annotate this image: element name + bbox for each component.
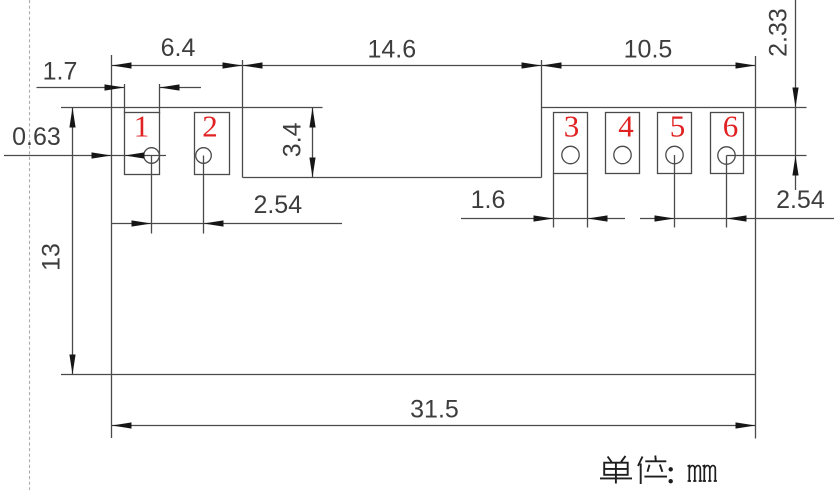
svg-text:5: 5 (670, 109, 686, 144)
svg-text:3.4: 3.4 (279, 122, 307, 157)
svg-text:0.63: 0.63 (12, 123, 61, 151)
svg-text:1.6: 1.6 (471, 186, 506, 214)
svg-text:3: 3 (564, 109, 580, 144)
svg-text:2.54: 2.54 (776, 186, 825, 214)
svg-text:31.5: 31.5 (410, 395, 459, 423)
svg-text:1: 1 (134, 109, 150, 144)
svg-text:2.33: 2.33 (765, 8, 793, 57)
svg-text:2: 2 (202, 109, 218, 144)
svg-text:14.6: 14.6 (367, 35, 416, 63)
svg-text:4: 4 (618, 109, 634, 144)
svg-text:6.4: 6.4 (161, 34, 196, 62)
svg-text:6: 6 (723, 109, 739, 144)
svg-text:1.7: 1.7 (43, 58, 78, 86)
svg-text:2.54: 2.54 (253, 191, 302, 219)
svg-text:13: 13 (38, 243, 66, 271)
svg-text:10.5: 10.5 (624, 35, 673, 63)
